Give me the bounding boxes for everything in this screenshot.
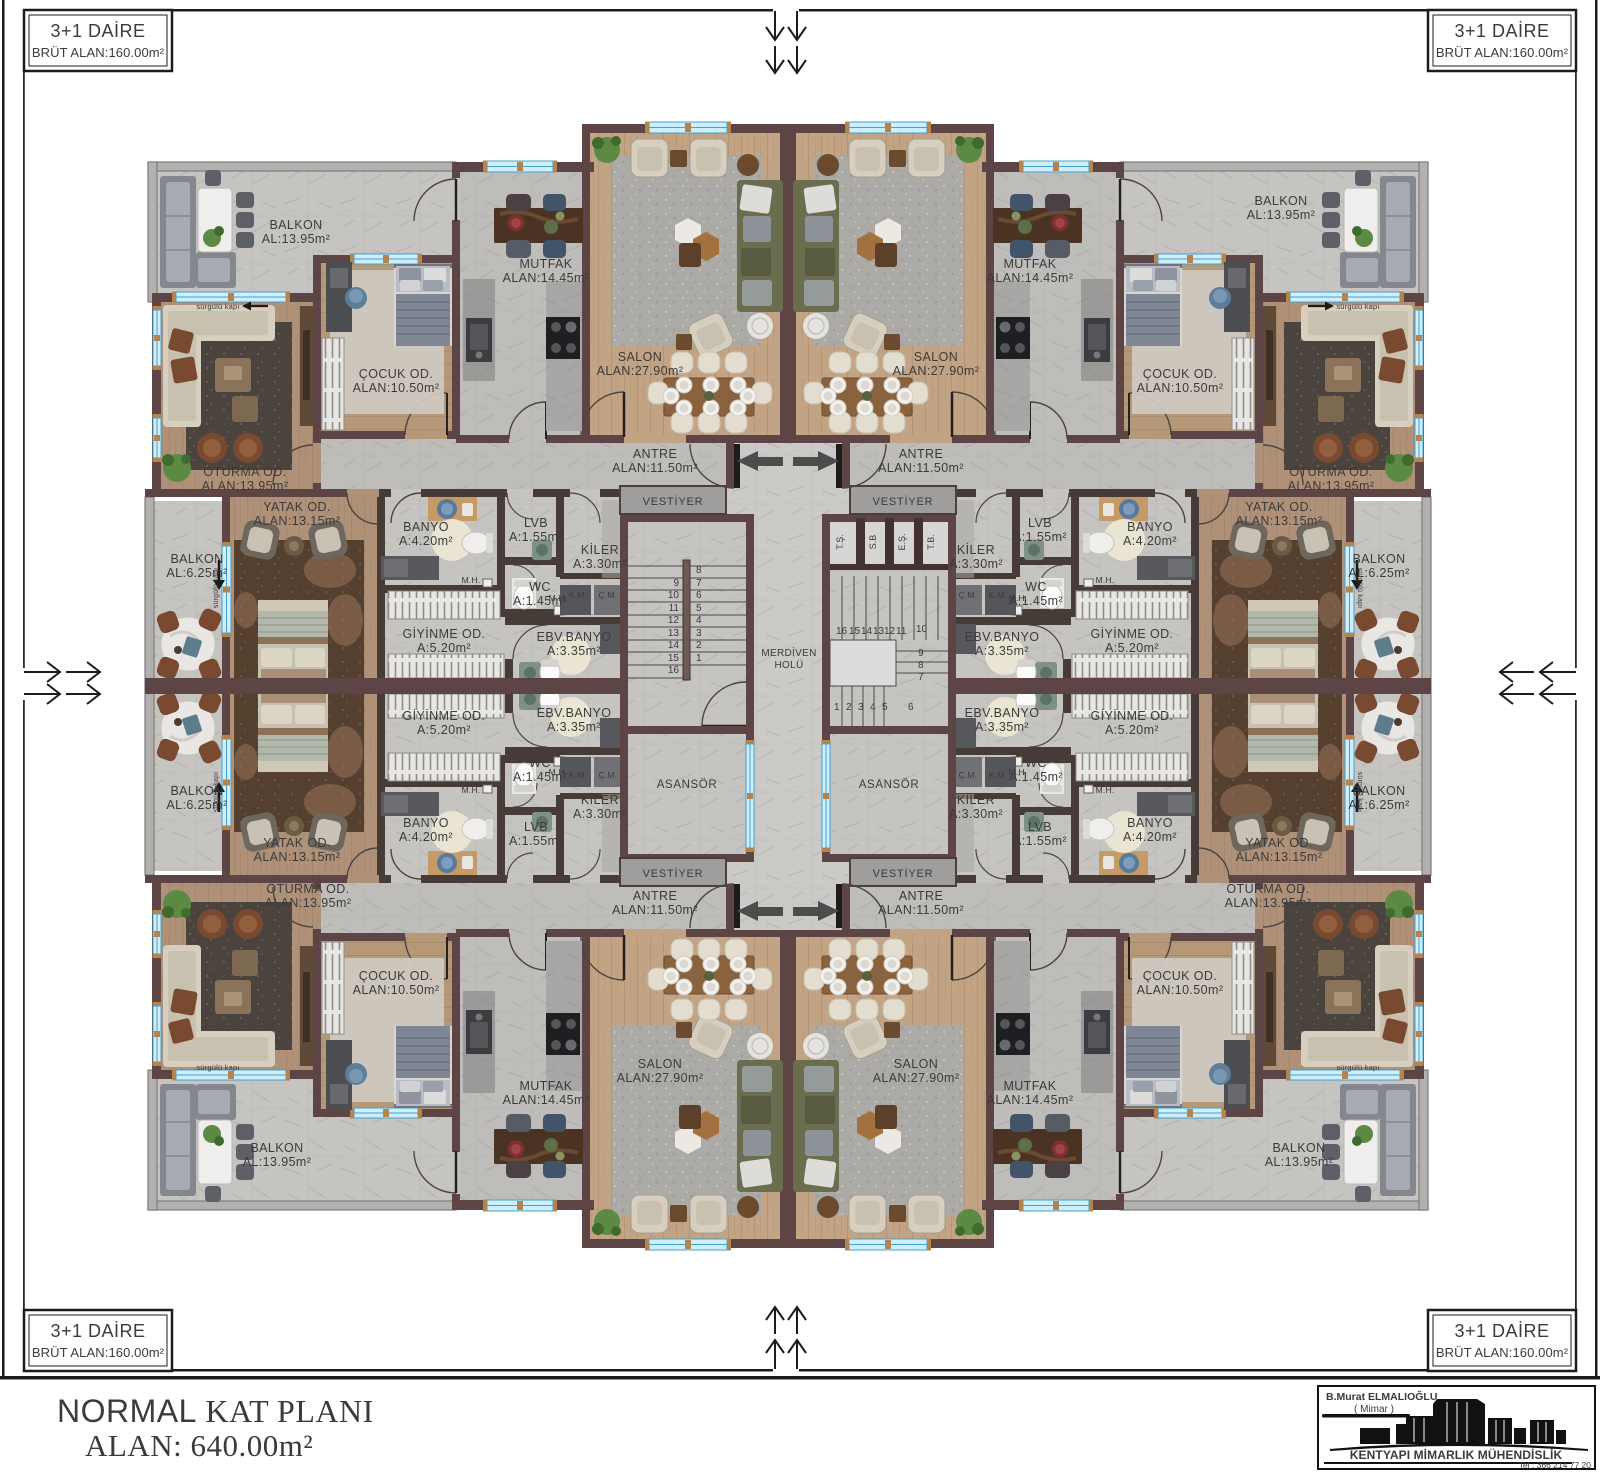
svg-text:K.M.: K.M. [989, 770, 1007, 780]
svg-text:VESTİYER: VESTİYER [873, 867, 934, 880]
svg-text:ÇOCUK OD.: ÇOCUK OD. [359, 969, 433, 983]
svg-text:3+1 DAİRE: 3+1 DAİRE [1454, 21, 1549, 41]
svg-text:ALAN:14.45m²: ALAN:14.45m² [503, 271, 590, 285]
svg-text:ALAN:10.50m²: ALAN:10.50m² [353, 381, 440, 395]
svg-text:13: 13 [873, 626, 885, 637]
svg-text:GİYİNME OD.: GİYİNME OD. [1091, 627, 1174, 641]
svg-text:YATAK OD.: YATAK OD. [263, 500, 331, 514]
svg-text:3+1 DAİRE: 3+1 DAİRE [50, 1321, 145, 1341]
svg-text:16: 16 [836, 626, 848, 637]
svg-text:A:4.20m²: A:4.20m² [399, 830, 453, 844]
svg-text:4: 4 [696, 615, 702, 626]
svg-text:M.H.: M.H. [1009, 767, 1028, 777]
svg-text:sürgülü kapı: sürgülü kapı [1356, 568, 1363, 609]
svg-text:sürgülü kapı: sürgülü kapı [196, 302, 239, 311]
svg-text:ALAN:10.50m²: ALAN:10.50m² [353, 983, 440, 997]
svg-text:WC: WC [1025, 756, 1047, 770]
svg-text:OTURMA OD.: OTURMA OD. [1226, 882, 1309, 896]
svg-text:ALAN:13.15m²: ALAN:13.15m² [254, 514, 341, 528]
svg-text:ALAN:27.90m²: ALAN:27.90m² [617, 1071, 704, 1085]
svg-text:MERDİVEN: MERDİVEN [761, 646, 816, 659]
svg-text:ALAN:10.50m²: ALAN:10.50m² [1137, 983, 1224, 997]
svg-text:8: 8 [918, 660, 924, 671]
svg-text:GİYİNME OD.: GİYİNME OD. [1091, 709, 1174, 723]
svg-text:A:4.20m²: A:4.20m² [399, 534, 453, 548]
svg-text:BANYO: BANYO [1127, 816, 1173, 830]
svg-text:ALAN:13.95m²: ALAN:13.95m² [1225, 896, 1312, 910]
svg-text:EBV.BANYO: EBV.BANYO [537, 630, 612, 644]
svg-text:ALAN:11.50m²: ALAN:11.50m² [612, 461, 698, 475]
svg-text:6: 6 [696, 590, 702, 601]
svg-text:ANTRE: ANTRE [633, 447, 677, 461]
svg-text:sürgülü kapı: sürgülü kapı [1336, 1063, 1379, 1072]
svg-text:4: 4 [870, 702, 876, 713]
svg-text:Ç.M.: Ç.M. [599, 590, 618, 600]
svg-text:ALAN:10.50m²: ALAN:10.50m² [1137, 381, 1224, 395]
svg-text:GİYİNME OD.: GİYİNME OD. [403, 627, 486, 641]
svg-text:sürgülü kapı: sürgülü kapı [1336, 302, 1379, 311]
svg-text:A:4.20m²: A:4.20m² [1123, 830, 1177, 844]
svg-text:12: 12 [884, 626, 896, 637]
svg-text:A:3.30m²: A:3.30m² [573, 557, 627, 571]
svg-text:A:3.35m²: A:3.35m² [547, 644, 601, 658]
svg-text:7: 7 [918, 672, 924, 683]
svg-text:KİLER: KİLER [957, 793, 995, 807]
svg-text:A:3.30m²: A:3.30m² [573, 807, 627, 821]
svg-text:BRÜT ALAN:160.00m²: BRÜT ALAN:160.00m² [32, 1345, 165, 1360]
svg-text:MUTFAK: MUTFAK [1003, 257, 1056, 271]
svg-text:3+1 DAİRE: 3+1 DAİRE [50, 21, 145, 41]
svg-text:M.H.: M.H. [462, 575, 481, 585]
svg-text:ALAN:11.50m²: ALAN:11.50m² [878, 903, 964, 917]
svg-text:9: 9 [918, 648, 924, 659]
svg-text:BRÜT ALAN:160.00m²: BRÜT ALAN:160.00m² [1436, 45, 1569, 60]
svg-text:HOLÜ: HOLÜ [775, 659, 804, 671]
svg-text:13: 13 [668, 628, 680, 639]
svg-text:BALKON: BALKON [1352, 552, 1405, 566]
svg-text:ÇOCUK OD.: ÇOCUK OD. [1143, 367, 1217, 381]
svg-text:M.H.: M.H. [549, 593, 568, 603]
svg-text:ALAN:14.45m²: ALAN:14.45m² [987, 271, 1074, 285]
svg-text:NORMAL KAT PLANI: NORMAL KAT PLANI [57, 1393, 374, 1429]
svg-text:BANYO: BANYO [403, 520, 449, 534]
svg-text:K.M.: K.M. [569, 590, 587, 600]
svg-text:BRÜT ALAN:160.00m²: BRÜT ALAN:160.00m² [32, 45, 165, 60]
svg-text:16: 16 [668, 665, 680, 676]
svg-text:LVB: LVB [524, 820, 548, 834]
svg-text:A:3.35m²: A:3.35m² [975, 644, 1029, 658]
svg-text:KİLER: KİLER [581, 543, 619, 557]
svg-text:Ç.M.: Ç.M. [959, 590, 978, 600]
svg-text:ALAN:11.50m²: ALAN:11.50m² [878, 461, 964, 475]
svg-text:EBV.BANYO: EBV.BANYO [965, 630, 1040, 644]
svg-text:MUTFAK: MUTFAK [519, 257, 572, 271]
svg-text:T.Ş.: T.Ş. [835, 534, 845, 550]
svg-text:AL:13.95m²: AL:13.95m² [262, 232, 331, 246]
svg-text:sürgülü kapı: sürgülü kapı [213, 772, 220, 813]
svg-text:7: 7 [696, 578, 702, 589]
svg-text:ALAN:27.90m²: ALAN:27.90m² [893, 364, 980, 378]
svg-text:14: 14 [861, 626, 873, 637]
svg-text:WC: WC [1025, 580, 1047, 594]
svg-text:VESTİYER: VESTİYER [643, 495, 704, 508]
svg-text:15: 15 [668, 653, 680, 664]
svg-text:A:3.35m²: A:3.35m² [975, 720, 1029, 734]
svg-text:1: 1 [696, 653, 702, 664]
svg-text:11: 11 [896, 626, 907, 637]
svg-text:A:3.30m²: A:3.30m² [949, 557, 1003, 571]
svg-text:BALKON: BALKON [1272, 1141, 1325, 1155]
svg-text:A:1.55m²: A:1.55m² [509, 834, 563, 848]
svg-text:ALAN:14.45m²: ALAN:14.45m² [987, 1093, 1074, 1107]
svg-text:1: 1 [834, 702, 840, 713]
svg-text:Ç.M.: Ç.M. [959, 770, 978, 780]
svg-text:SALON: SALON [894, 1057, 938, 1071]
svg-text:VESTİYER: VESTİYER [873, 495, 934, 508]
svg-text:BALKON: BALKON [1254, 194, 1307, 208]
svg-text:EBV.BANYO: EBV.BANYO [537, 706, 612, 720]
svg-text:BALKON: BALKON [269, 218, 322, 232]
svg-text:WC: WC [529, 580, 551, 594]
svg-text:ASANSÖR: ASANSÖR [657, 779, 717, 791]
svg-text:A:1.55m²: A:1.55m² [1013, 530, 1067, 544]
svg-text:K.M.: K.M. [989, 590, 1007, 600]
svg-text:SALON: SALON [638, 1057, 682, 1071]
svg-text:M.H.: M.H. [549, 767, 568, 777]
svg-text:sürgülü kapı: sürgülü kapı [1356, 772, 1363, 813]
svg-text:ÇOCUK OD.: ÇOCUK OD. [359, 367, 433, 381]
svg-text:YATAK OD.: YATAK OD. [1245, 500, 1313, 514]
svg-text:OTURMA OD.: OTURMA OD. [203, 465, 286, 479]
svg-text:2: 2 [846, 702, 852, 713]
svg-text:M.H.: M.H. [1096, 785, 1115, 795]
svg-text:ANTRE: ANTRE [899, 447, 943, 461]
svg-text:A:3.35m²: A:3.35m² [547, 720, 601, 734]
svg-text:BANYO: BANYO [1127, 520, 1173, 534]
svg-text:A:5.20m²: A:5.20m² [417, 641, 471, 655]
svg-text:ASANSÖR: ASANSÖR [859, 779, 919, 791]
svg-text:14: 14 [668, 640, 680, 651]
svg-text:ALAN:11.50m²: ALAN:11.50m² [612, 903, 698, 917]
svg-text:BALKON: BALKON [170, 552, 223, 566]
svg-text:OTURMA OD.: OTURMA OD. [266, 882, 349, 896]
svg-text:A:4.20m²: A:4.20m² [1123, 534, 1177, 548]
svg-text:3: 3 [858, 702, 864, 713]
svg-text:SALON: SALON [914, 350, 958, 364]
svg-text:BANYO: BANYO [403, 816, 449, 830]
svg-text:( Mimar ): ( Mimar ) [1354, 1404, 1394, 1415]
svg-text:AL:13.95m²: AL:13.95m² [1247, 208, 1316, 222]
svg-text:BRÜT ALAN:160.00m²: BRÜT ALAN:160.00m² [1436, 1345, 1569, 1360]
svg-text:8: 8 [696, 565, 702, 576]
svg-text:WC: WC [529, 756, 551, 770]
svg-text:A:5.20m²: A:5.20m² [417, 723, 471, 737]
svg-text:EBV.BANYO: EBV.BANYO [965, 706, 1040, 720]
svg-text:ALAN:13.15m²: ALAN:13.15m² [1236, 514, 1323, 528]
svg-text:SALON: SALON [618, 350, 662, 364]
svg-text:AL:13.95m²: AL:13.95m² [243, 1155, 312, 1169]
svg-text:B.Murat ELMALIOĞLU: B.Murat ELMALIOĞLU [1326, 1390, 1437, 1403]
svg-text:BALKON: BALKON [250, 1141, 303, 1155]
svg-text:ALAN: 640.00m²: ALAN: 640.00m² [85, 1428, 313, 1463]
svg-text:3+1 DAİRE: 3+1 DAİRE [1454, 1321, 1549, 1341]
svg-text:ALAN:13.95m²: ALAN:13.95m² [265, 896, 352, 910]
svg-text:sürgülü kapı: sürgülü kapı [196, 1063, 239, 1072]
svg-text:3: 3 [696, 628, 702, 639]
svg-text:LVB: LVB [1028, 820, 1052, 834]
svg-text:MUTFAK: MUTFAK [1003, 1079, 1056, 1093]
svg-text:M.H.: M.H. [1009, 593, 1028, 603]
svg-text:11: 11 [669, 603, 680, 614]
svg-text:OTURMA OD.: OTURMA OD. [1289, 465, 1372, 479]
svg-text:ALAN:13.15m²: ALAN:13.15m² [1236, 850, 1323, 864]
svg-text:ÇOCUK OD.: ÇOCUK OD. [1143, 969, 1217, 983]
svg-text:MUTFAK: MUTFAK [519, 1079, 572, 1093]
svg-text:ALAN:13.15m²: ALAN:13.15m² [254, 850, 341, 864]
svg-text:Ç.M.: Ç.M. [599, 770, 618, 780]
svg-text:E.Ş.: E.Ş. [897, 533, 907, 550]
svg-text:A:5.20m²: A:5.20m² [1105, 723, 1159, 737]
svg-text:5: 5 [696, 603, 702, 614]
svg-text:LVB: LVB [1028, 516, 1052, 530]
svg-text:ALAN:14.45m²: ALAN:14.45m² [503, 1093, 590, 1107]
svg-text:S.B: S.B [868, 535, 878, 550]
svg-text:K.M.: K.M. [569, 770, 587, 780]
svg-text:Tel : 366 214 77 20: Tel : 366 214 77 20 [1519, 1460, 1592, 1470]
svg-text:LVB: LVB [524, 516, 548, 530]
svg-text:ALAN:27.90m²: ALAN:27.90m² [873, 1071, 960, 1085]
svg-text:ANTRE: ANTRE [899, 889, 943, 903]
svg-text:A:5.20m²: A:5.20m² [1105, 641, 1159, 655]
svg-text:KİLER: KİLER [957, 543, 995, 557]
svg-text:ANTRE: ANTRE [633, 889, 677, 903]
svg-text:ALAN:13.95m²: ALAN:13.95m² [202, 479, 289, 493]
svg-text:A:3.30m²: A:3.30m² [949, 807, 1003, 821]
svg-text:M.H.: M.H. [462, 785, 481, 795]
svg-text:6: 6 [908, 702, 914, 713]
svg-text:10: 10 [668, 590, 680, 601]
svg-text:KİLER: KİLER [581, 793, 619, 807]
svg-text:YATAK OD.: YATAK OD. [263, 836, 331, 850]
svg-text:YATAK OD.: YATAK OD. [1245, 836, 1313, 850]
svg-text:A:1.55m²: A:1.55m² [509, 530, 563, 544]
svg-text:M.H.: M.H. [1096, 575, 1115, 585]
svg-text:9: 9 [673, 578, 679, 589]
svg-text:10: 10 [916, 624, 928, 635]
svg-text:5: 5 [882, 702, 888, 713]
svg-text:12: 12 [668, 615, 680, 626]
svg-text:T.B.: T.B. [926, 534, 936, 550]
svg-text:ALAN:13.95m²: ALAN:13.95m² [1288, 479, 1375, 493]
svg-text:A:1.55m²: A:1.55m² [1013, 834, 1067, 848]
svg-text:15: 15 [849, 626, 861, 637]
svg-text:2: 2 [696, 640, 702, 651]
svg-text:GİYİNME OD.: GİYİNME OD. [403, 709, 486, 723]
svg-text:VESTİYER: VESTİYER [643, 867, 704, 880]
svg-text:AL:13.95m²: AL:13.95m² [1265, 1155, 1334, 1169]
svg-text:ALAN:27.90m²: ALAN:27.90m² [597, 364, 684, 378]
svg-text:sürgülü kapı: sürgülü kapı [213, 568, 220, 609]
